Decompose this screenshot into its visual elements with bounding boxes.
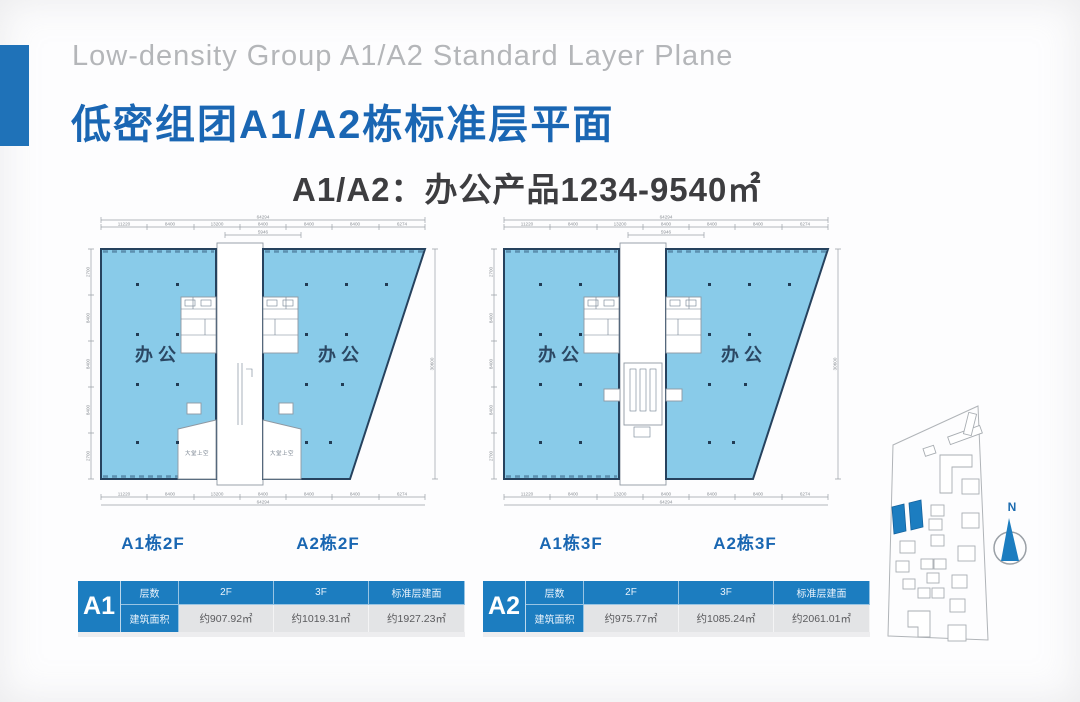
- lobby-box-right: [279, 403, 293, 414]
- col-header: 3F: [274, 581, 369, 605]
- dim-label: 30600: [833, 357, 838, 370]
- col-header: 3F: [679, 581, 774, 605]
- floor-plan-2f: 64294 11220 8400 13200 8400 8400 8400 62…: [83, 213, 465, 563]
- row-label: 建筑面积: [526, 605, 584, 632]
- core-right: [263, 297, 298, 353]
- table-cell-standard-area: 约1927.23㎡: [369, 605, 465, 632]
- dim-label: 8400: [304, 222, 315, 227]
- site-buildings: [896, 412, 982, 641]
- lobby-void-right: 大堂上空: [263, 420, 301, 479]
- compass: N: [994, 500, 1026, 564]
- site-building-a2-highlight: [909, 500, 923, 530]
- plan-label-a1-3f: A1栋3F: [521, 529, 621, 554]
- dim-total-bottom: 64294: [660, 500, 673, 505]
- dim-total-bottom: 64294: [257, 500, 270, 505]
- table-id-badge: A1: [78, 581, 121, 632]
- compass-needle-icon: [1001, 518, 1019, 561]
- accent-bar: [0, 45, 29, 146]
- table-cell-standard-area: 约2061.01㎡: [774, 605, 870, 632]
- dim-label: 8400: [304, 492, 315, 497]
- col-header: 2F: [584, 581, 679, 605]
- corridor: [217, 243, 263, 485]
- dim-label: 30600: [430, 357, 435, 370]
- dim-total-top: 64294: [660, 215, 673, 220]
- site-building-a1-highlight: [892, 504, 906, 534]
- title-english: Low-density Group A1/A2 Standard Layer P…: [72, 40, 733, 73]
- floor-plan-3f-drawing: 64294 11220 8400 13200 8400 8400 8400 62…: [486, 213, 868, 513]
- area-table-a1: A1 层数 2F 3F 标准层建面 建筑面积 约907.92㎡ 约1019.31…: [78, 581, 465, 632]
- table-cell-2f-area: 约907.92㎡: [179, 605, 274, 632]
- page-title: 低密组团A1/A2栋标准层平面: [71, 92, 614, 150]
- svg-text:大堂上空: 大堂上空: [185, 449, 209, 457]
- dim-label: 8400: [489, 404, 494, 415]
- dim-total-top: 64294: [257, 215, 270, 220]
- plan-label-a1-2f: A1栋2F: [103, 529, 203, 554]
- col-header: 标准层建面: [369, 581, 465, 605]
- floor-plan-3f: 64294 11220 8400 13200 8400 8400 8400 62…: [486, 213, 868, 563]
- lobby-void-left: 大堂上空: [178, 420, 216, 479]
- zone-label-office: 办公: [721, 344, 767, 365]
- dim-label: 13200: [211, 492, 224, 497]
- dim-label: 6274: [397, 492, 408, 497]
- subtitle-area-range: A1/A2：办公产品1234-9540㎡: [292, 163, 761, 211]
- dim-label: 8400: [86, 358, 91, 369]
- dim-label: 8400: [707, 222, 718, 227]
- site-key-map: N: [878, 383, 1063, 668]
- dim-label: 11220: [521, 222, 534, 227]
- dim-label: 2700: [86, 266, 91, 277]
- dim-label: 6274: [800, 222, 811, 227]
- dim-label: 11220: [118, 222, 131, 227]
- dim-label: 8400: [165, 222, 176, 227]
- col-header: 2F: [179, 581, 274, 605]
- dim-label: 8400: [568, 222, 579, 227]
- dim-label: 8400: [350, 222, 361, 227]
- dim-mid: 5946: [258, 230, 269, 235]
- zone-label-office: 办公: [135, 344, 181, 365]
- dim-label: 6274: [397, 222, 408, 227]
- dim-label: 13200: [614, 222, 627, 227]
- slide: { "header": { "title_en": "Low-density G…: [0, 0, 1080, 702]
- table-cell-3f-area: 约1085.24㎡: [679, 605, 774, 632]
- dim-label: 8400: [568, 492, 579, 497]
- dim-label: 8400: [707, 492, 718, 497]
- dim-label: 8400: [86, 312, 91, 323]
- core-right: [666, 297, 701, 353]
- dim-label: 2700: [489, 450, 494, 461]
- dim-label: 6274: [800, 492, 811, 497]
- svg-text:大堂上空: 大堂上空: [270, 449, 294, 457]
- dim-label: 8400: [350, 492, 361, 497]
- plan-label-a2-2f: A2栋2F: [278, 529, 378, 554]
- area-table-a2: A2 层数 2F 3F 标准层建面 建筑面积 约975.77㎡ 约1085.24…: [483, 581, 870, 632]
- dim-label: 8400: [489, 358, 494, 369]
- dim-label: 8400: [258, 492, 269, 497]
- dim-label: 13200: [211, 222, 224, 227]
- col-header: 层数: [121, 581, 179, 605]
- dim-label: 11220: [118, 492, 131, 497]
- north-label: N: [1008, 500, 1017, 514]
- dim-label: 8400: [86, 404, 91, 415]
- floor-plan-2f-drawing: 64294 11220 8400 13200 8400 8400 8400 62…: [83, 213, 465, 513]
- table-cell-3f-area: 约1019.31㎡: [274, 605, 369, 632]
- dim-mid: 5946: [661, 230, 672, 235]
- dim-label: 2700: [86, 450, 91, 461]
- col-header: 层数: [526, 581, 584, 605]
- dim-label: 13200: [614, 492, 627, 497]
- dim-label: 8400: [661, 492, 672, 497]
- dim-label: 8400: [489, 312, 494, 323]
- dim-label: 2700: [489, 266, 494, 277]
- dim-label: 8400: [753, 222, 764, 227]
- plan-label-a2-3f: A2栋3F: [695, 529, 795, 554]
- lobby-box-left: [187, 403, 201, 414]
- table-cell-2f-area: 约975.77㎡: [584, 605, 679, 632]
- dim-label: 11220: [521, 492, 534, 497]
- dim-label: 8400: [661, 222, 672, 227]
- row-label: 建筑面积: [121, 605, 179, 632]
- dim-label: 8400: [165, 492, 176, 497]
- dim-label: 8400: [258, 222, 269, 227]
- table-id-badge: A2: [483, 581, 526, 632]
- core-left: [181, 297, 216, 353]
- core-left: [584, 297, 619, 353]
- col-header: 标准层建面: [774, 581, 870, 605]
- dim-label: 8400: [753, 492, 764, 497]
- zone-label-office: 办公: [318, 344, 364, 365]
- zone-label-office: 办公: [538, 344, 584, 365]
